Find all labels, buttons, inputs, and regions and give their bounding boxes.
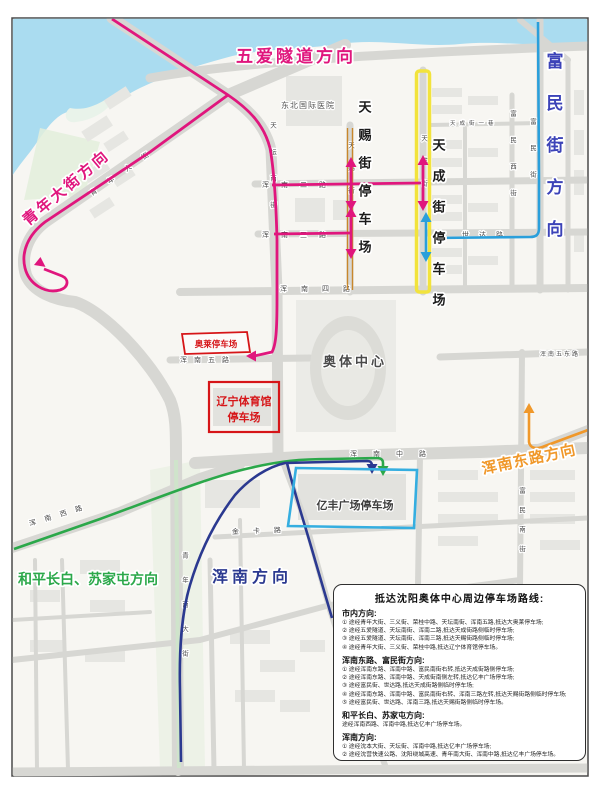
legend-item: ④ 途经青年大街、三义街、荣桂中路,抵达辽宁体育馆停车场。 [342,644,577,652]
legend-item: ② 途经浑南东路、浑南中路、天成街南侧左转,抵达亿丰广场停车场; [342,674,577,682]
legend-item: ① 途经青年大街、三义街、荣桂中路、天坛南街、浑南五路,抵达大奥莱停车场; [342,619,577,627]
legend-item: ③ 途经富民街、世达路,抵达天成街路侧临时停车场; [342,682,577,690]
street-label: 浑南五东路 [540,350,580,358]
liaoning-gym-label-line1: 辽宁体育馆 [217,394,272,408]
olympic-center-label: 奥体中心 [323,354,387,369]
liaoning-gym-label-line2: 停车场 [228,410,261,424]
legend-item: ④ 途经浑南东路、浑南中路、富民南街右转、浑南三路左转,抵达天赐街路侧临时停车场… [342,691,577,699]
aolai-parking-label: 奥莱停车场 [194,339,238,349]
legend-section-heading-downtown: 市内方向: [342,608,577,619]
legend-section-heading-heping: 和平长白、苏家屯方向: [342,710,577,721]
legend-section-heading-hunnan-east: 浑南东路、富民街方向: [342,655,577,666]
legend-item: ② 途经沈营快速公路、沈阳绕城高速、青年南大街、浑南中路,抵达亿丰广场停车场。 [342,751,577,759]
route-legend-panel: 抵达沈阳奥体中心周边停车场路线: 市内方向: ① 途经青年大街、三义街、荣桂中路… [333,584,586,761]
legend-item: ① 途经沈本大街、天坛街、浑南中路,抵达亿丰广场停车场; [342,743,577,751]
heping-changbai-direction-label: 和平长白、苏家屯方向 [18,571,158,587]
legend-item: 途经浑南西路、浑南中路,抵达亿丰广场停车场。 [342,721,577,729]
street-label: 浑南四路 [280,284,364,293]
tiancheng-parking-label: 天成街停车场 [431,138,447,324]
legend-item: ① 途经浑南东路、浑南中路、富民南街右转,抵达天成街路侧停车场; [342,666,577,674]
hunnan-direction-label: 浑南方向 [212,567,292,586]
tianci-parking-label: 天赐街停车场 [357,100,373,268]
legend-item: ⑤ 途经富民街、世达路、浑南三路,抵达天赐街路侧临时停车场。 [342,699,577,707]
legend-item: ② 途经五爱隧道、天坛南街、浑南二路,抵达天成街路侧临时停车场; [342,627,577,635]
street-label: 浑南五路 [180,355,236,364]
wuai-tunnel-direction-label: 五爱隧道方向 [236,46,356,66]
aolai-parking-box: 奥莱停车场 [182,332,250,354]
yifeng-parking-label: 亿丰广场停车场 [317,498,394,512]
street-label: 浑南中路 [350,449,442,458]
legend-title: 抵达沈阳奥体中心周边停车场路线: [342,590,577,605]
hospital-label: 东北国际医院 [281,100,335,110]
street-label: 天成街一巷 [450,119,498,127]
fumin-street-direction-label: 富民街方向 [544,51,565,262]
parking-map-screenshot: 浑南二路 浑南三路 浑南四路 浑南五路 浑南五东路 浑南中路 浑南西路 世达路 … [0,0,600,797]
legend-section-heading-hunnan: 浑南方向: [342,732,577,743]
legend-item: ③ 途经五爱隧道、天坛南街、浑南三路,抵达天赐街路侧临时停车场; [342,635,577,643]
